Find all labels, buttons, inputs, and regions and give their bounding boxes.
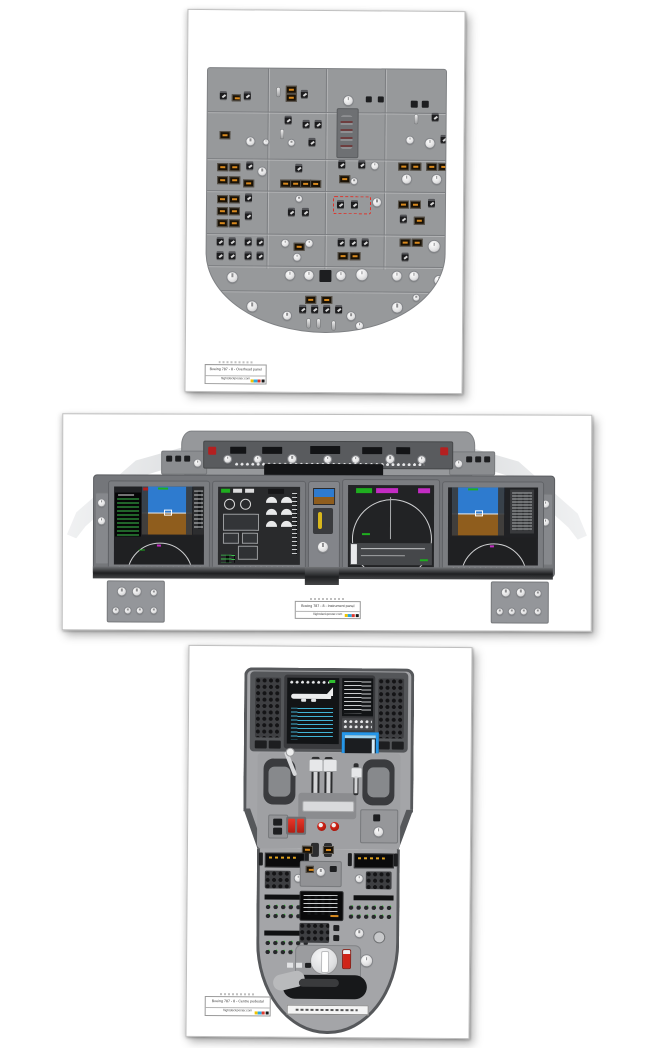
fine-print [220,993,256,995]
toggle-switch [302,208,309,216]
engine-fire-switch-left [317,822,326,831]
panel-divider [207,158,445,161]
push-button [422,101,429,108]
print-color-marks [254,1011,268,1014]
nd-track-line [390,497,391,539]
thrust-lever-left [309,759,324,772]
indicator-light [310,180,321,188]
nd-area [450,537,536,564]
master-warning-light-left [208,447,216,455]
speedbrake-lever-knob [286,748,295,757]
eicas-data-column [292,493,297,555]
mcp-knob [224,456,231,463]
mcp-display [262,447,282,454]
rotary-knob [344,96,353,105]
indicator-light [414,217,425,225]
indicator-light [426,163,437,171]
glareshield-side-panel-right [449,451,495,475]
rotary-selector [432,175,441,184]
rotary-knob [373,198,381,206]
rotary-knob [246,137,254,145]
switch-cap [305,963,311,968]
hand-rest-right [362,759,394,805]
toggle-switch [308,138,315,146]
audio-panel-display [354,895,394,900]
engine-gauge [281,497,292,503]
poster-caption: Boeing 787 - 8 - Instrument panel flight… [295,601,361,619]
nd-waypoint-label-magenta [376,488,398,493]
panel-divider [206,265,444,268]
eicas-screen [218,487,300,565]
rotary-knob [282,240,289,247]
indicator-light [321,296,332,304]
rotary-knob [371,162,378,169]
rotary-knob [409,272,418,281]
mcp-display [230,447,246,454]
indicator-light [400,239,411,247]
indicator-light [217,207,228,215]
engine-gauge [281,509,292,515]
nd-data [139,550,145,551]
eicas-readout [268,489,284,494]
toggle-switch [400,215,407,223]
engine-gauge [266,509,277,515]
rotary-knob [429,241,440,252]
thrust-lever-right [323,759,338,772]
indicator-light [338,252,349,260]
panel-center-step [305,567,339,585]
poster-pedestal[interactable]: Boeing 787 - 8 - Centre pedestal flightd… [185,645,472,1039]
fuel-control-switch-left [288,819,295,833]
mcp-display [396,447,410,454]
cutoff-switch-red [343,950,350,968]
panel-divider [216,290,434,293]
first-officer-display-unit [442,481,544,571]
toggle-switch [338,160,345,168]
cdu-key [269,741,281,749]
radio-tuning-display-right [354,853,394,868]
landing-gear-lever [318,512,322,529]
switch-cap [287,963,293,968]
toggle-switch [351,200,358,208]
indicator-light [410,201,421,209]
speed-tape [142,487,148,535]
guard-recess [319,270,331,282]
toggle-switch [311,305,318,313]
toggle-switch [301,90,308,98]
rotary-knob [392,272,401,281]
engine-gauge [281,521,292,527]
print-color-marks [250,379,264,382]
dial-gauge [240,499,251,510]
standby-instrument-panel [308,481,340,571]
quadrant-crossbar [302,801,354,812]
toggle-switch [332,321,335,330]
rotary-knob [263,140,268,145]
toggle-switch [402,253,409,261]
crank-handle [373,931,385,943]
pfd-ground [452,514,504,535]
glareshield-side-panel-left [161,451,207,475]
toggle-switch [229,237,236,245]
indicator-light [232,94,241,101]
poster-instrument-panel[interactable]: Boeing 787 - 8 - Instrument panel flight… [62,413,593,631]
checklist-text [291,708,333,740]
indicator-light [286,86,297,94]
radio-keypad-left [265,870,291,888]
pfd-aircraft-symbol [164,510,172,516]
rotary-knob [406,137,413,144]
indicator-light [219,131,230,139]
toggle-switch [299,305,306,313]
rotary-selector [402,175,411,184]
poster-caption: Boeing 787 - 8 - Overhead panel flightde… [205,364,267,384]
fine-print [310,598,346,600]
toggle-switch [217,251,224,259]
right-lower-panel [491,581,549,623]
toggle-switch [245,251,252,259]
nd-data [362,533,370,535]
left-lower-panel [107,580,165,622]
panel-divider [207,190,445,193]
panel-divider [207,233,445,236]
indicator-light [286,94,297,102]
synoptic-box [223,514,259,531]
function-key-row [342,718,373,730]
toggle-switch [358,160,365,168]
captain-display-screen [114,486,204,564]
indicator-light [398,163,409,171]
rotary-knob [318,542,328,552]
left-cdu-keypad [255,677,281,737]
screen-soft-keys [289,680,329,684]
toggle-switch [280,130,283,139]
flap-lever-stem [354,776,357,793]
indicator-light [229,163,240,171]
aft-cdu-display [299,891,343,921]
toggle-switch [338,238,345,246]
fine-print [219,361,253,363]
red-guarded-handle [340,115,352,149]
alternate-flaps-panel [360,809,398,843]
fo-display-screen [448,487,538,565]
checklist-screen [287,678,340,744]
rotary-knob [413,295,419,301]
rotary-knob [351,178,357,184]
toggle-switch [337,200,344,208]
rotary-knob [304,271,313,280]
rotary-knob [247,301,257,311]
panel-divider [383,69,386,269]
captain-display-unit [108,480,210,570]
aircraft-silhouette [289,687,335,705]
master-warning-light-right [440,447,448,455]
indicator-light [217,176,228,184]
data-text [344,681,371,713]
cdu-key [392,741,404,749]
overhead-panel-graphic [205,67,447,334]
fuel-control-switch-right [297,819,304,833]
nd-message-strip [350,543,432,565]
standby-attitude-indicator [313,488,335,505]
poster-overhead[interactable]: Boeing 787 - 8 - Overhead panel flightde… [185,9,466,394]
pfd-aircraft-symbol [475,510,483,516]
indicator-light [229,195,240,203]
indicator-light [323,846,334,854]
nd-eta-label-magenta [418,488,430,493]
cdu-key [378,741,390,749]
dial-gauge [224,499,235,510]
green-status-key [329,680,335,683]
indicator-light [412,239,423,247]
synoptic-box [223,533,239,544]
rotary-knob [306,240,313,247]
data-page-area [510,489,534,533]
toggle-switch [245,237,252,245]
toggle-switch [246,161,253,169]
toggle-switch [317,319,320,328]
rotary-knob [227,272,237,282]
audio-control-panel-right [347,903,393,919]
engine-fire-switch-right [330,822,339,831]
pfd-ground [142,514,192,535]
toggle-switch [245,211,252,219]
toggle-switch [350,238,357,246]
indicator-light [398,201,409,209]
mcp-display [310,446,340,454]
toggle-switch [415,115,418,124]
indicator-light [217,219,228,227]
indicator-light [243,179,254,187]
indicator-light [229,219,240,227]
rotary-knob [294,254,301,261]
document-canvas: Boeing 787 - 8 - Overhead panel flightde… [0,0,652,1048]
toggle-switch [428,199,435,207]
right-cdu-keypad [378,678,404,738]
toggle-switch [307,319,310,328]
rotary-knob [258,167,266,175]
rotary-knob [356,269,367,280]
rotary-knob [283,312,291,320]
panel-divider [266,69,269,269]
engine-gauge [266,497,277,503]
toggle-switch [257,237,264,245]
center-nav-display-unit [342,479,440,573]
toggle-switch [288,208,295,216]
indicator-light [339,175,350,183]
rotary-knob [285,271,294,280]
indicator-light [229,207,240,215]
eicas-readout [233,489,242,493]
toggle-switch [323,305,330,313]
transponder-panel [300,861,342,887]
print-color-marks [345,614,359,617]
push-button [333,935,339,941]
indicator-light [294,243,305,251]
rotary-knob [434,276,443,285]
rudder-trim-knob [311,948,337,974]
rotary-knob [347,312,355,320]
nd-waypoint [490,545,494,547]
toggle-switch [277,88,280,97]
toggle-switch [303,120,310,128]
indicator-light [229,176,240,184]
engine-gauge [266,521,277,527]
toggle-switch [362,238,369,246]
radio-side-keys [394,854,398,867]
synoptic-box [242,533,258,544]
rotary-knob [425,139,434,148]
poster-caption: Boeing 787 - 8 - Centre pedestal flightd… [205,996,271,1017]
toggle-switch [220,91,227,99]
nav-display-screen [348,485,434,567]
data-screen [342,678,373,716]
toggle-switch [285,116,292,124]
indicator-light [410,163,421,171]
radio-keypad-right [366,871,392,889]
push-button [366,96,372,102]
placard-strip [287,1005,369,1016]
push-button [411,101,418,108]
toggle-switch [295,164,302,172]
rotary-knob [336,271,345,280]
eicas-memo [221,555,235,563]
altitude-tape [186,487,192,535]
pfd-data-column [193,487,204,535]
altitude-tape [498,487,504,535]
switch-cap [296,963,302,968]
toggle-switch [440,135,447,143]
rotary-knob [288,140,294,146]
stowage-insert [299,979,339,987]
toggle-switch [315,120,322,128]
aft-keypad [299,923,329,943]
rotary-knob [355,929,363,937]
toggle-switch [257,251,264,259]
radio-knob [356,875,363,882]
push-button [333,925,339,931]
indicator-light [217,195,228,203]
toggle-switch [432,113,439,121]
synoptic-box [238,546,258,560]
cdu-key [255,740,267,748]
indicator-light [217,163,228,171]
push-button [378,96,384,102]
toggle-switch [244,91,251,99]
rotary-knob [392,303,402,313]
toggle-switch [229,251,236,259]
rotary-knob [356,322,363,329]
speed-flag [143,488,148,491]
fma-annunciation [468,488,478,490]
rotary-knob [361,955,372,966]
indicator-light [350,252,361,260]
radio-side-keys [259,852,263,865]
toggle-switch [335,305,342,313]
indicator-light [305,296,316,304]
indicator-light [438,163,447,171]
speed-tape [452,487,458,535]
mcp-display [362,447,382,454]
fma-annunciation [158,488,168,490]
nd-waypoint [157,545,161,547]
eicas-display-unit [212,481,306,571]
nd-area [115,536,203,563]
gear-panel [313,508,333,534]
toggle-switch [217,237,224,245]
toggle-switch [245,193,252,201]
panel-divider [324,69,327,269]
nd-mode-label-green [356,488,372,493]
radio-side-keys [348,853,352,866]
rotary-knob [296,196,302,202]
eicas-green-readout [221,489,230,493]
eicas-readout [245,489,254,493]
